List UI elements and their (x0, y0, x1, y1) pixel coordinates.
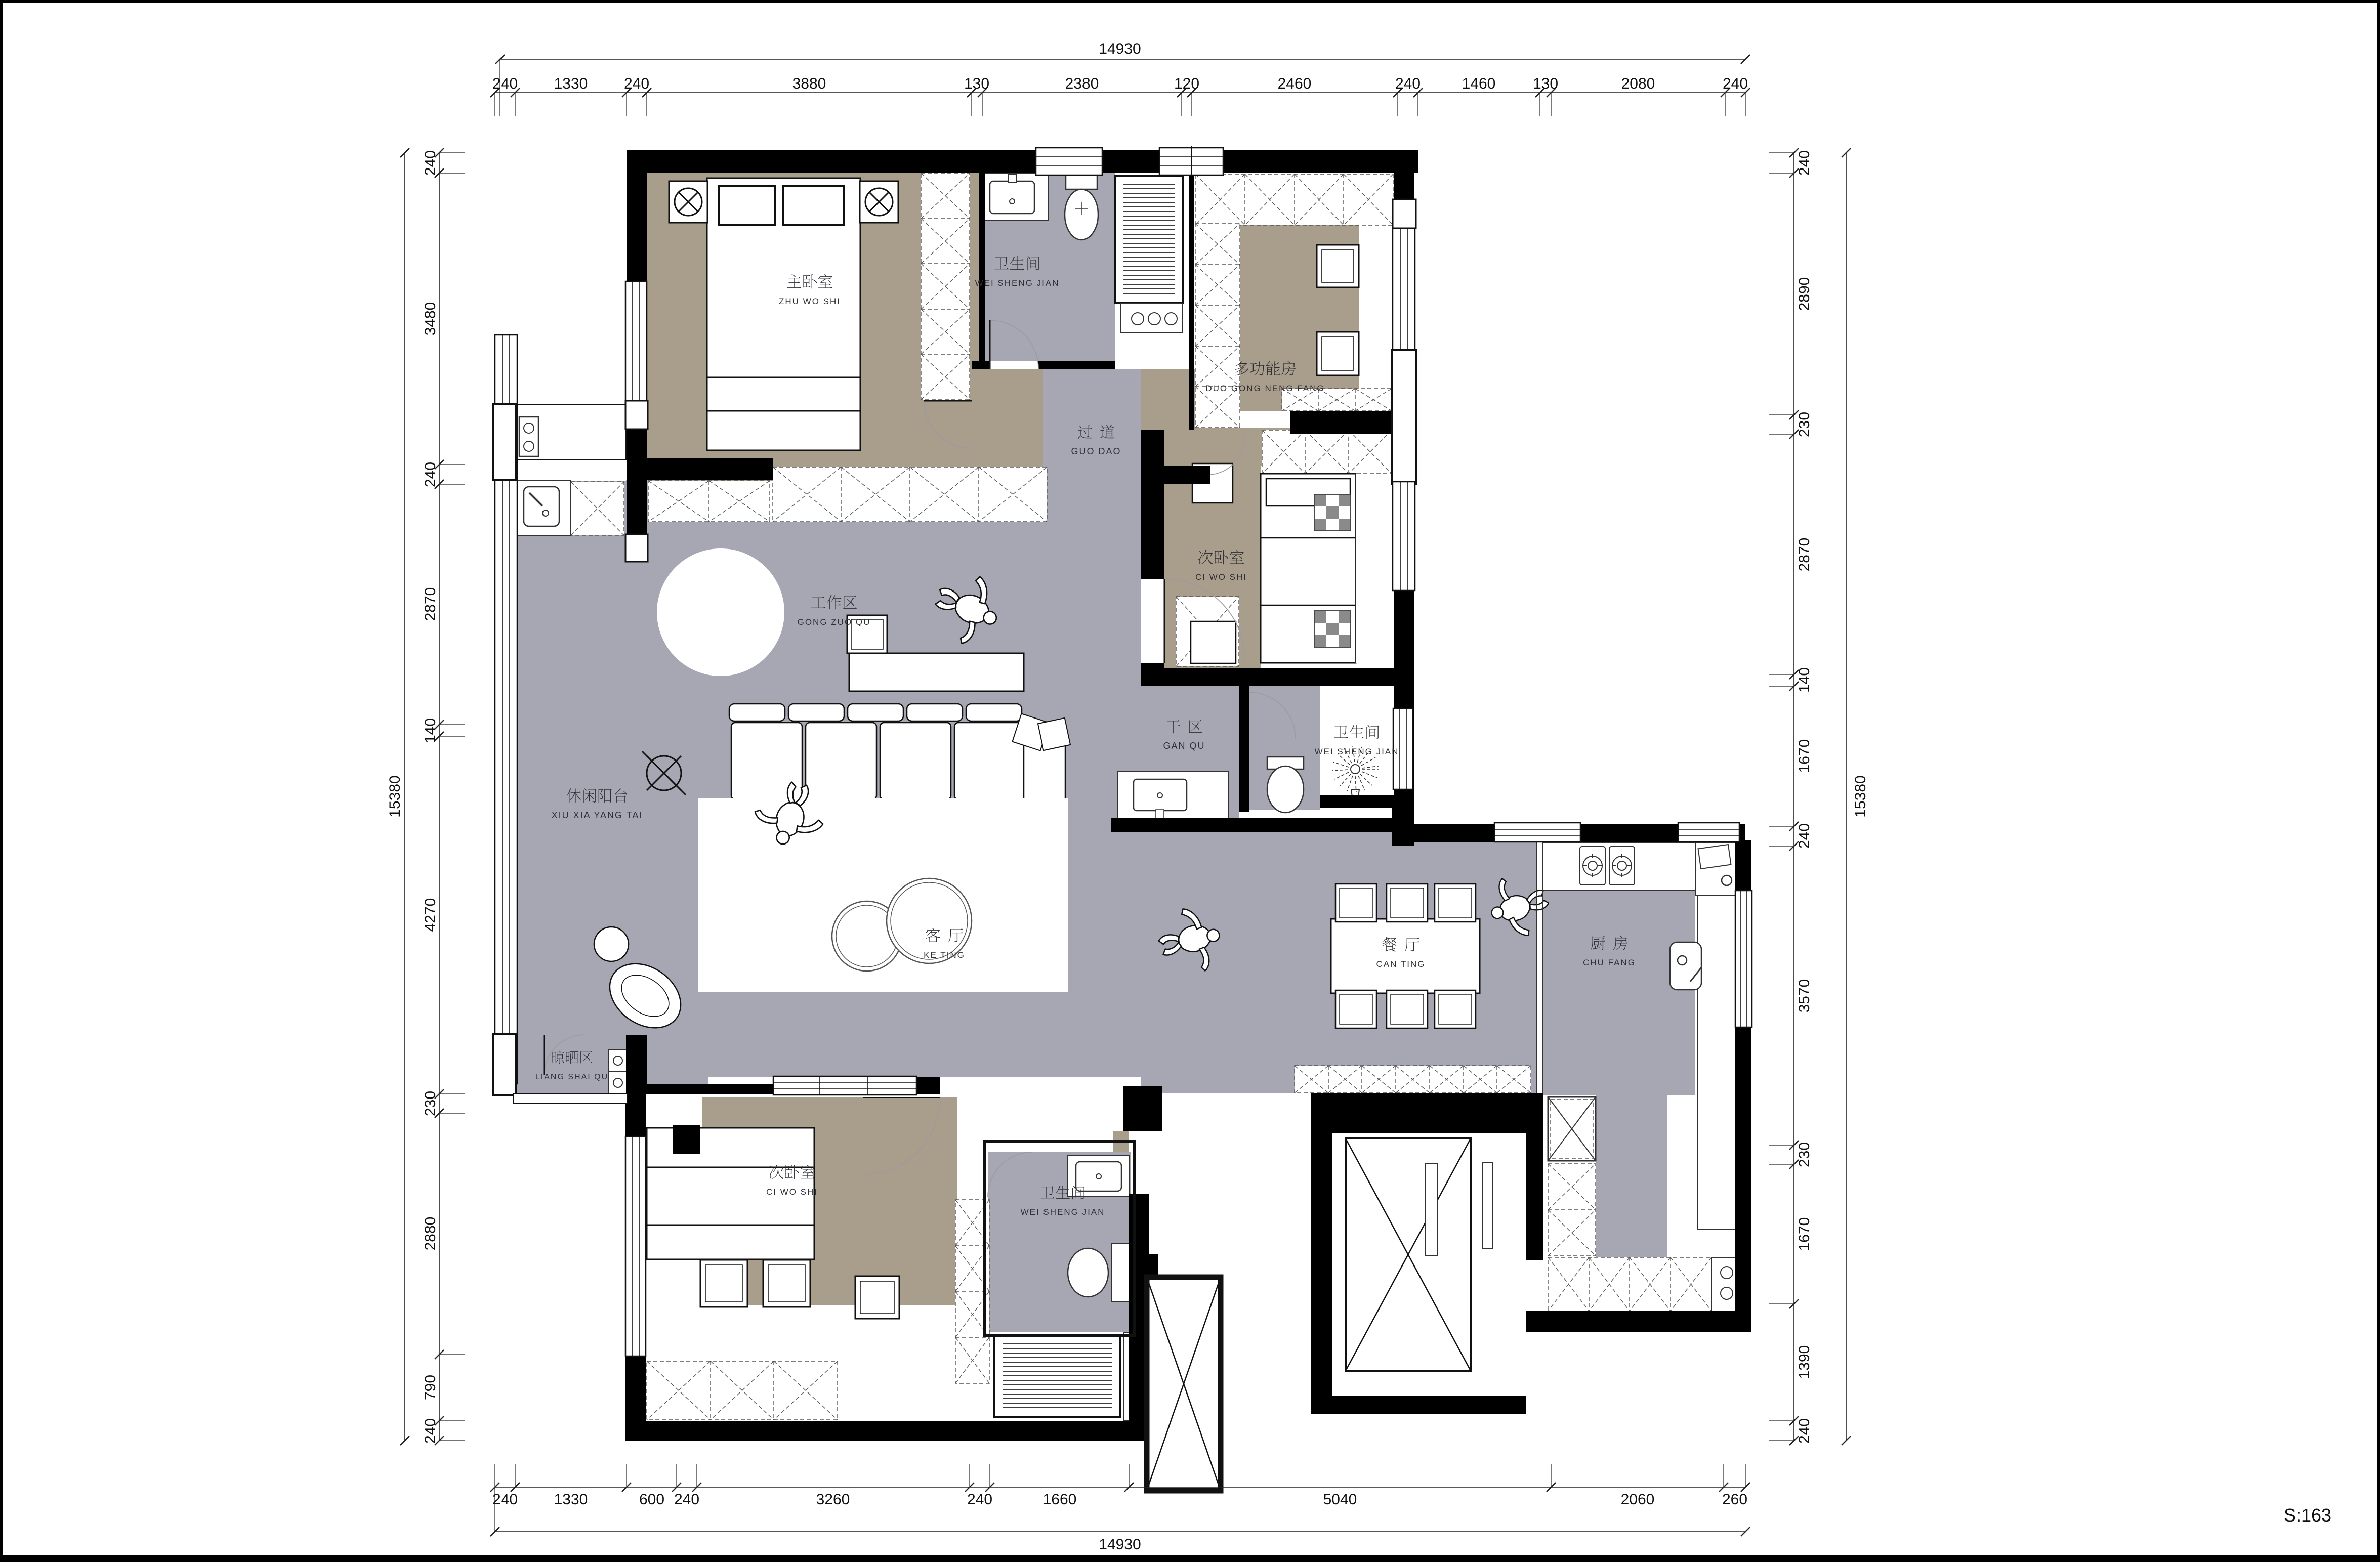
svg-text:2060: 2060 (1621, 1491, 1655, 1508)
svg-text:1670: 1670 (1796, 1217, 1813, 1251)
svg-text:WEI SHENG JIAN: WEI SHENG JIAN (975, 278, 1060, 288)
svg-text:1460: 1460 (1462, 75, 1496, 92)
svg-text:240: 240 (1796, 823, 1813, 849)
svg-text:14930: 14930 (1099, 40, 1141, 57)
svg-text:240: 240 (624, 75, 649, 92)
svg-text:790: 790 (422, 1375, 439, 1400)
svg-text:GAN QU: GAN QU (1163, 741, 1205, 751)
svg-text:CI WO SHI: CI WO SHI (766, 1187, 818, 1197)
svg-text:CHU FANG: CHU FANG (1583, 958, 1636, 967)
svg-text:5040: 5040 (1323, 1491, 1357, 1508)
svg-text:2080: 2080 (1621, 75, 1655, 92)
svg-text:3880: 3880 (792, 75, 826, 92)
svg-text:S:163: S:163 (2284, 1505, 2331, 1526)
svg-text:2870: 2870 (1796, 538, 1813, 572)
svg-text:KE TING: KE TING (924, 950, 965, 960)
svg-text:GONG ZUO QU: GONG ZUO QU (798, 617, 871, 627)
svg-text:DUO GONG NENG FANG: DUO GONG NENG FANG (1205, 384, 1324, 393)
svg-text:1390: 1390 (1796, 1345, 1813, 1379)
svg-text:14930: 14930 (1099, 1536, 1141, 1553)
svg-text:600: 600 (639, 1491, 664, 1508)
svg-text:3570: 3570 (1796, 979, 1813, 1013)
svg-text:230: 230 (422, 1091, 439, 1116)
svg-text:240: 240 (422, 1418, 439, 1444)
svg-text:4270: 4270 (422, 898, 439, 932)
svg-text:CAN TING: CAN TING (1376, 959, 1426, 969)
svg-text:140: 140 (422, 718, 439, 743)
svg-text:130: 130 (964, 75, 989, 92)
svg-text:2380: 2380 (1065, 75, 1099, 92)
svg-text:15380: 15380 (1852, 775, 1869, 817)
svg-text:130: 130 (1533, 75, 1558, 92)
svg-text:1660: 1660 (1043, 1491, 1077, 1508)
svg-text:240: 240 (492, 75, 518, 92)
svg-text:230: 230 (1796, 412, 1813, 437)
svg-text:3260: 3260 (816, 1491, 850, 1508)
svg-text:240: 240 (422, 150, 439, 176)
svg-text:1330: 1330 (554, 1491, 588, 1508)
svg-text:140: 140 (1796, 667, 1813, 693)
svg-text:CI WO SHI: CI WO SHI (1195, 572, 1247, 582)
svg-text:1330: 1330 (554, 75, 588, 92)
svg-text:2880: 2880 (422, 1217, 439, 1251)
svg-text:240: 240 (674, 1491, 699, 1508)
svg-text:LIANG SHAI QU: LIANG SHAI QU (535, 1073, 608, 1081)
svg-text:1670: 1670 (1796, 739, 1813, 773)
svg-text:ZHU WO SHI: ZHU WO SHI (779, 297, 841, 306)
svg-text:120: 120 (1174, 75, 1199, 92)
svg-text:15380: 15380 (387, 775, 403, 817)
svg-text:240: 240 (967, 1491, 992, 1508)
svg-text:240: 240 (422, 462, 439, 487)
svg-text:240: 240 (1796, 1418, 1813, 1444)
svg-text:2460: 2460 (1278, 75, 1312, 92)
svg-text:3480: 3480 (422, 302, 439, 336)
svg-text:230: 230 (1796, 1142, 1813, 1167)
svg-text:240: 240 (1796, 150, 1813, 176)
svg-text:2890: 2890 (1796, 277, 1813, 311)
svg-text:260: 260 (1722, 1491, 1747, 1508)
svg-text:240: 240 (1723, 75, 1748, 92)
svg-text:2870: 2870 (422, 587, 439, 621)
svg-text:240: 240 (1395, 75, 1421, 92)
svg-text:240: 240 (492, 1491, 518, 1508)
svg-text:XIU XIA YANG TAI: XIU XIA YANG TAI (552, 810, 643, 820)
svg-text:WEI SHENG JIAN: WEI SHENG JIAN (1315, 747, 1399, 756)
svg-text:WEI SHENG JIAN: WEI SHENG JIAN (1021, 1207, 1105, 1217)
svg-text:GUO DAO: GUO DAO (1071, 446, 1121, 456)
